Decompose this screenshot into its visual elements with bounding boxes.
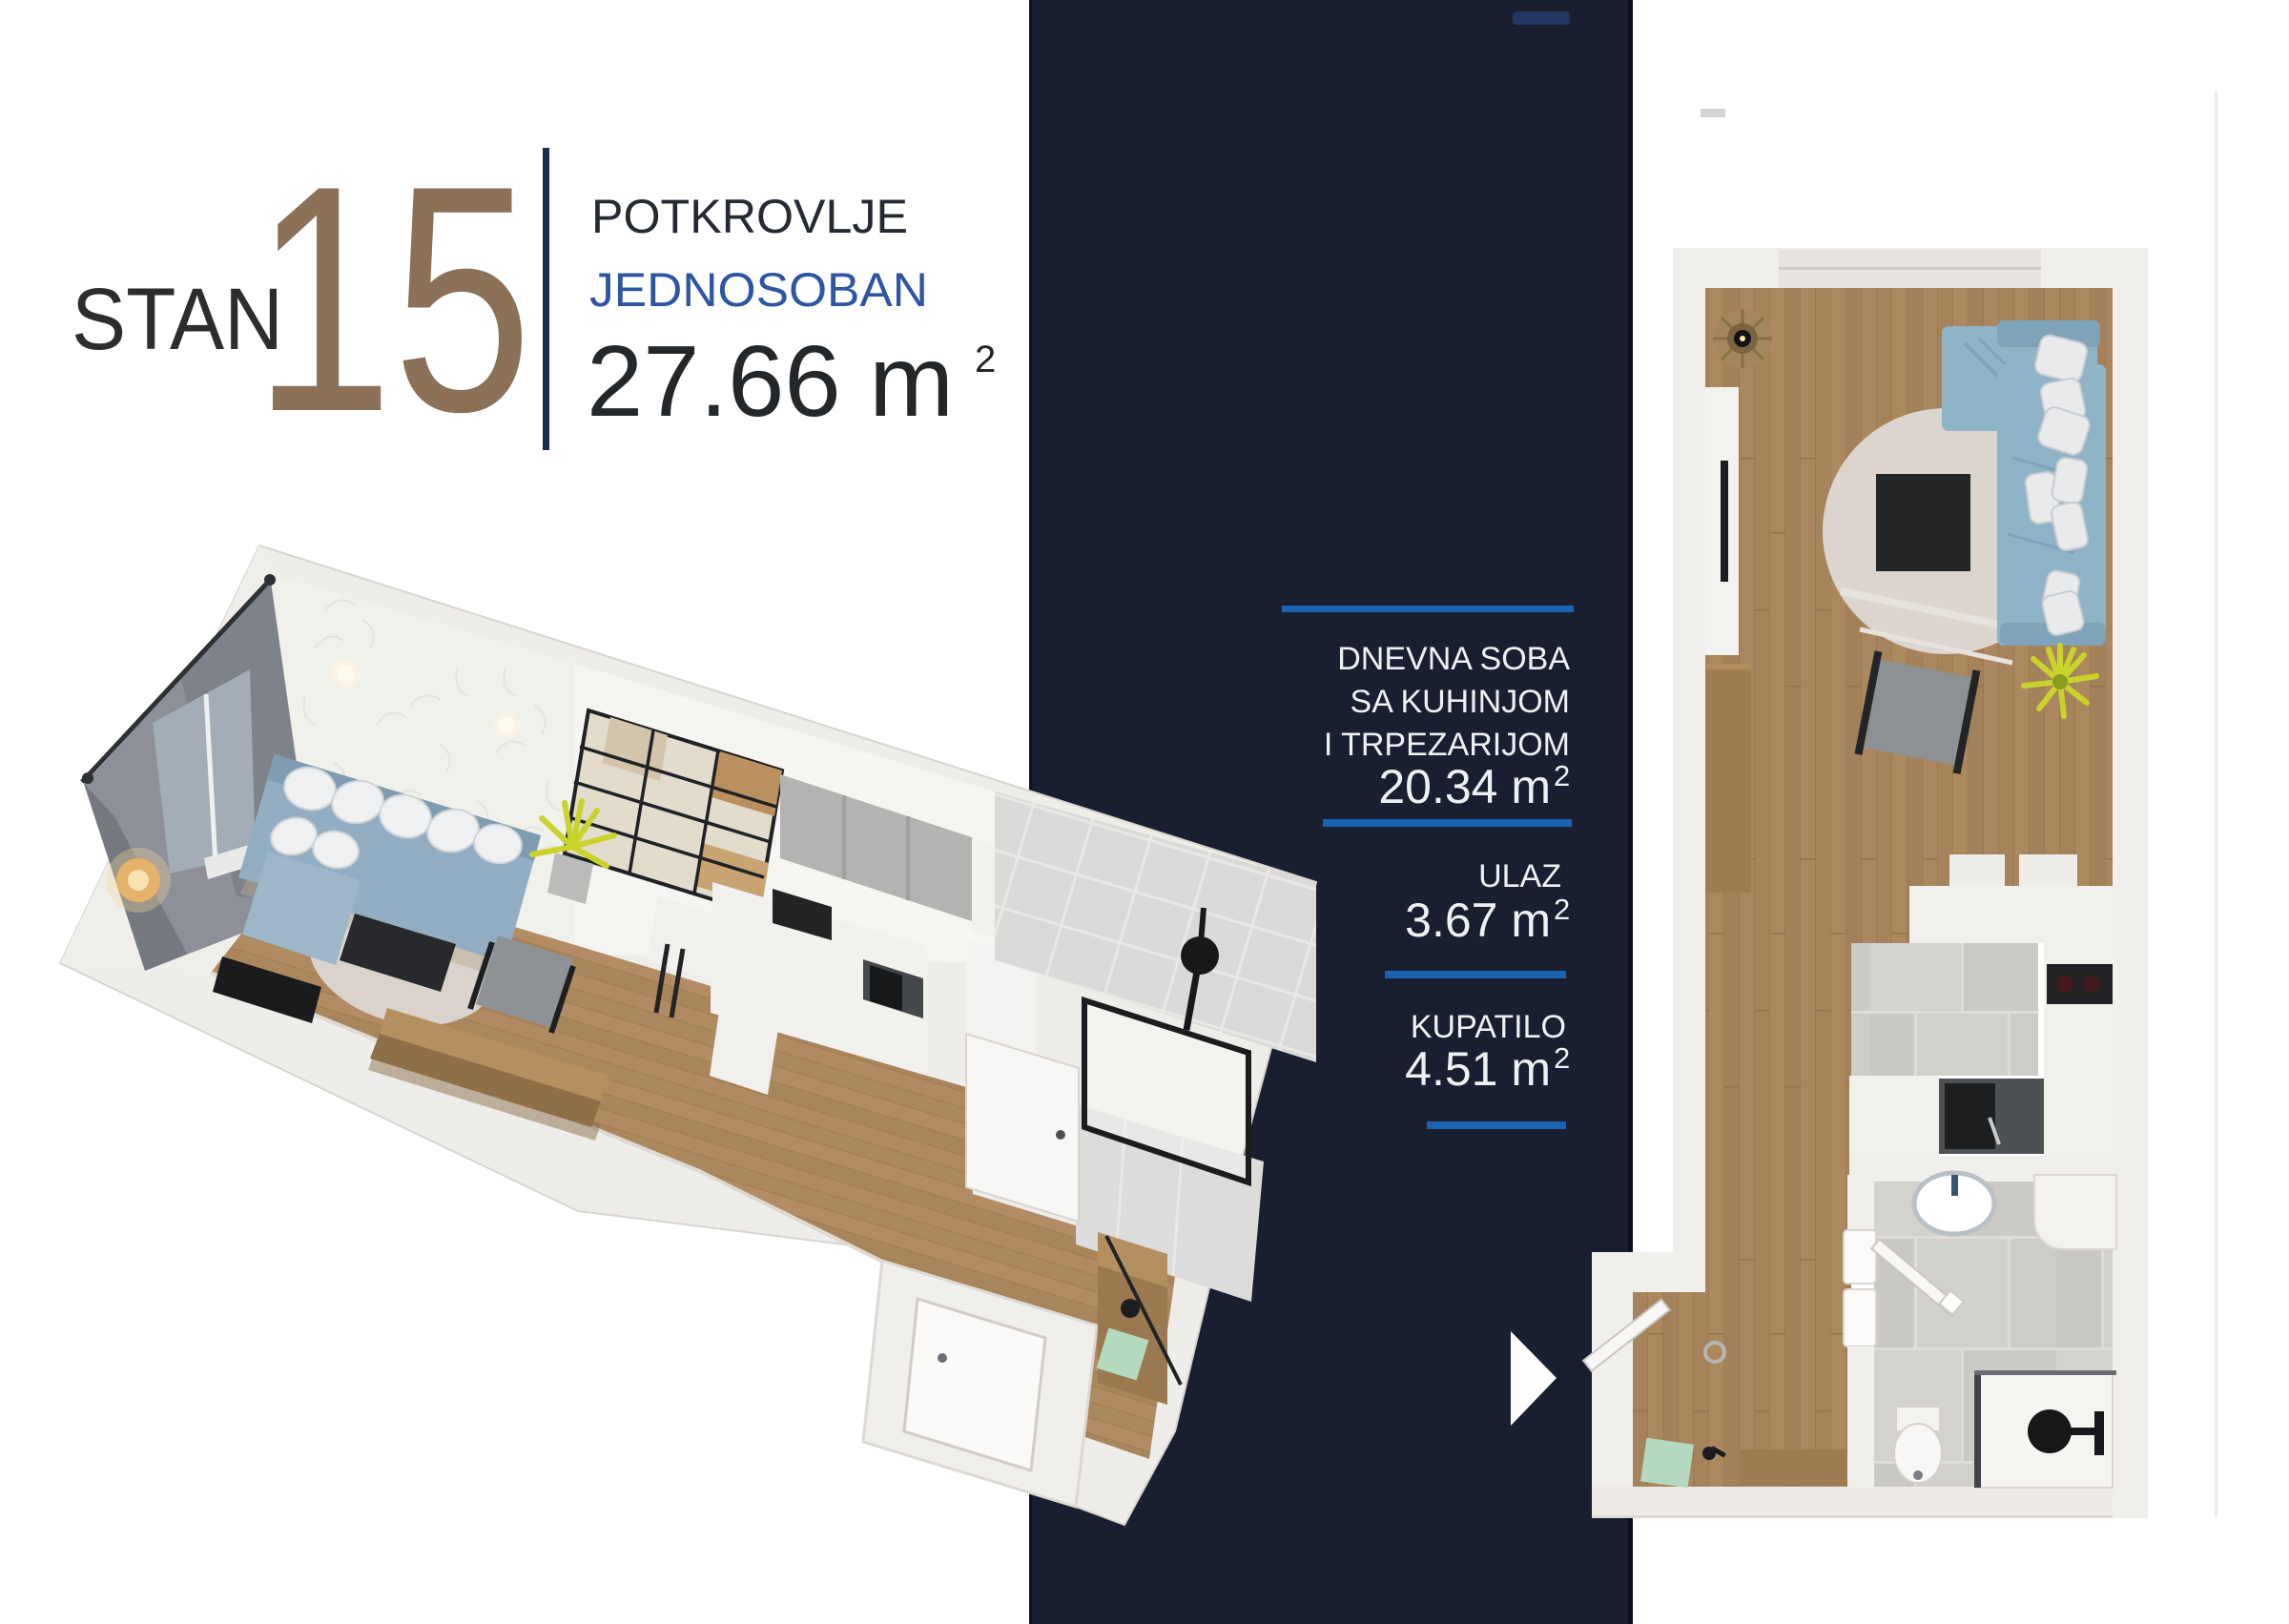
svg-text:2: 2	[975, 339, 996, 380]
svg-text:STAN: STAN	[72, 271, 283, 368]
svg-text:27.66 m: 27.66 m	[587, 325, 954, 438]
svg-text:I TRPEZARIJOM: I TRPEZARIJOM	[1324, 727, 1570, 763]
svg-text:SA KUHINJOM: SA KUHINJOM	[1351, 684, 1570, 720]
svg-text:2: 2	[1554, 759, 1570, 792]
svg-text:4.51 m: 4.51 m	[1405, 1042, 1551, 1096]
svg-text:JEDNOSOBAN: JEDNOSOBAN	[589, 263, 928, 317]
svg-text:POTKROVLJE: POTKROVLJE	[591, 190, 908, 243]
svg-text:20.34 m: 20.34 m	[1378, 760, 1551, 813]
svg-text:3.67 m: 3.67 m	[1405, 894, 1551, 947]
svg-text:2: 2	[1554, 893, 1570, 926]
svg-text:15: 15	[254, 118, 532, 479]
svg-text:2: 2	[1554, 1041, 1570, 1075]
svg-text:ULAZ: ULAZ	[1478, 858, 1561, 894]
svg-text:DNEVNA SOBA: DNEVNA SOBA	[1337, 641, 1570, 677]
svg-text:KUPATILO: KUPATILO	[1411, 1009, 1566, 1045]
